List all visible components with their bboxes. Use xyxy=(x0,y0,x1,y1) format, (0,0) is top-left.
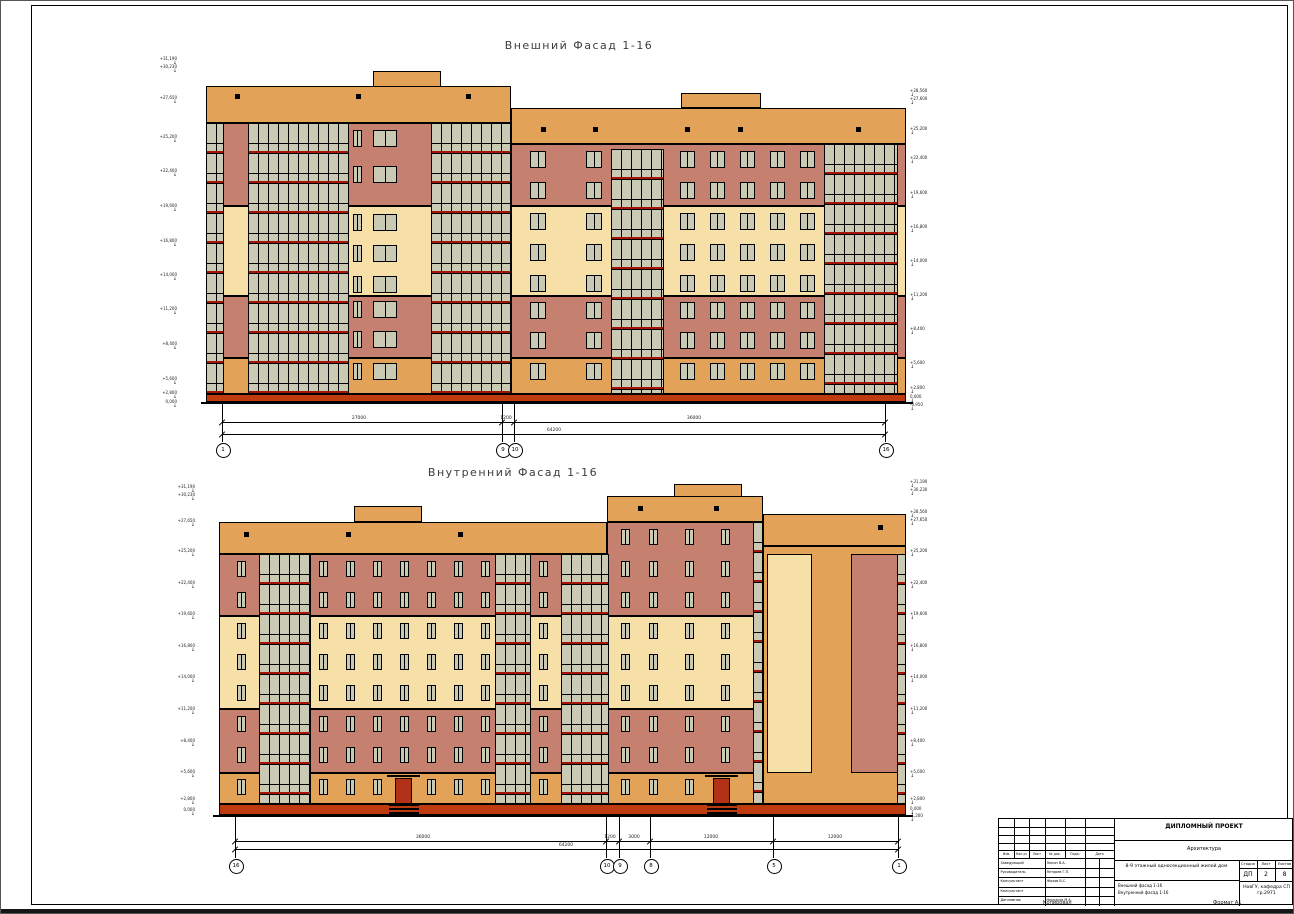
vent-opening xyxy=(235,94,240,99)
vent-opening xyxy=(856,127,861,132)
wall-panel xyxy=(219,522,607,554)
window xyxy=(400,654,409,670)
vent-opening xyxy=(356,94,361,99)
window xyxy=(721,529,730,545)
window xyxy=(454,592,463,608)
window xyxy=(710,213,725,230)
window xyxy=(481,592,490,608)
elevation-mark: +8,400↓ xyxy=(910,739,932,749)
extension-line xyxy=(619,817,620,858)
elevation-mark: +22,400↓ xyxy=(910,156,932,166)
window xyxy=(319,716,328,732)
window xyxy=(740,151,755,168)
list-value: 2 xyxy=(1257,871,1275,878)
window xyxy=(680,275,695,292)
window xyxy=(539,685,548,701)
window xyxy=(800,332,815,349)
title-block-cell: Жохов В.С. xyxy=(1047,879,1067,883)
title-block-cell: Подп. xyxy=(1065,852,1085,856)
window xyxy=(454,561,463,577)
elevation-mark: +27,600↓ xyxy=(910,97,932,107)
elevation-mark: +14,000↓ xyxy=(173,675,195,685)
balcony-glazing xyxy=(611,149,664,394)
window xyxy=(740,244,755,261)
vent-opening xyxy=(878,525,883,530)
window xyxy=(621,779,630,795)
window xyxy=(237,716,246,732)
window xyxy=(649,747,658,763)
wall-panel xyxy=(206,86,511,123)
elevation-mark: +19,600↓ xyxy=(155,204,177,214)
window xyxy=(621,685,630,701)
window xyxy=(530,275,546,292)
title-block-cell: Дата xyxy=(1085,852,1114,856)
elevation-mark: +25,200↓ xyxy=(173,549,195,559)
window xyxy=(346,747,355,763)
title-block-line xyxy=(1114,840,1294,841)
window xyxy=(373,331,397,348)
window xyxy=(586,302,602,319)
window xyxy=(685,623,694,639)
wall-panel xyxy=(763,514,906,546)
wall-panel xyxy=(354,506,422,522)
window xyxy=(621,561,630,577)
window xyxy=(710,302,725,319)
elevation-mark: +5,600↓ xyxy=(910,361,932,371)
window xyxy=(685,685,694,701)
window xyxy=(373,245,397,262)
window xyxy=(586,213,602,230)
window xyxy=(373,276,397,293)
window xyxy=(800,363,815,380)
window xyxy=(353,331,362,348)
window xyxy=(373,166,397,183)
window xyxy=(740,213,755,230)
elevation-mark: +16,800↓ xyxy=(155,239,177,249)
window xyxy=(530,363,546,380)
window xyxy=(710,151,725,168)
vent-opening xyxy=(738,127,743,132)
elevation-mark: +22,400↓ xyxy=(910,581,932,591)
window xyxy=(685,747,694,763)
window xyxy=(346,561,355,577)
elevation-mark: +2,800↓ xyxy=(173,797,195,807)
window xyxy=(353,166,362,183)
window xyxy=(539,747,548,763)
dimension-line xyxy=(222,434,885,435)
window xyxy=(319,747,328,763)
elevation-mark: -1,200↓ xyxy=(910,814,932,824)
window xyxy=(685,529,694,545)
window xyxy=(481,716,490,732)
window xyxy=(621,654,630,670)
window xyxy=(400,623,409,639)
balcony-glazing xyxy=(248,123,349,394)
window xyxy=(373,623,382,639)
elevation-mark: +27,650↓ xyxy=(910,518,932,528)
elevation-mark: +14,000↓ xyxy=(155,273,177,283)
title-block-cell: Заведующий xyxy=(1001,861,1024,865)
copied-label: Копировал xyxy=(1043,900,1072,906)
window xyxy=(373,561,382,577)
window xyxy=(685,716,694,732)
wall-panel xyxy=(206,394,906,402)
ground-line xyxy=(201,402,913,404)
window xyxy=(346,592,355,608)
window xyxy=(680,244,695,261)
window xyxy=(400,685,409,701)
window xyxy=(586,244,602,261)
window xyxy=(770,332,785,349)
window xyxy=(319,623,328,639)
format-label: Формат А1 xyxy=(1213,900,1241,906)
window xyxy=(621,623,630,639)
lists-header: Листов xyxy=(1275,862,1294,866)
title-block: ДИПЛОМНЫЙ ПРОЕКТ Архитектура 8-9 этажный… xyxy=(998,818,1293,905)
window xyxy=(740,302,755,319)
window xyxy=(539,654,548,670)
window xyxy=(353,130,362,147)
title-block-line xyxy=(999,868,1114,869)
window xyxy=(237,592,246,608)
window xyxy=(373,592,382,608)
entrance-canopy xyxy=(387,775,420,777)
elevation-mark: +5,600↓ xyxy=(910,770,932,780)
list-header: Лист xyxy=(1257,862,1275,866)
title-block-cell: Янтарев Г.П. xyxy=(1047,870,1070,874)
window xyxy=(740,332,755,349)
title-block-cell: Консультант xyxy=(1001,889,1024,893)
window xyxy=(530,213,546,230)
elevation-mark: +11,200↓ xyxy=(173,707,195,717)
axis-bubble: 1 xyxy=(216,443,231,458)
window xyxy=(800,213,815,230)
title-block-cell: № док. xyxy=(1045,852,1065,856)
window xyxy=(680,213,695,230)
window xyxy=(740,182,755,199)
window xyxy=(530,182,546,199)
elevation-mark: +22,400↓ xyxy=(173,581,195,591)
window xyxy=(685,779,694,795)
balcony-glazing xyxy=(259,554,311,804)
title-block-line xyxy=(1239,881,1294,882)
wall-panel xyxy=(851,554,899,773)
elevation-mark: +8,400↓ xyxy=(173,739,195,749)
window xyxy=(481,654,490,670)
window xyxy=(427,592,436,608)
elevation-mark: +30,230↓ xyxy=(173,493,195,503)
dimension-label: 12000 xyxy=(828,835,842,840)
window xyxy=(319,592,328,608)
window xyxy=(427,747,436,763)
entrance-steps xyxy=(389,804,419,814)
balcony-glazing xyxy=(824,144,898,394)
elevation-mark: +30,230↓ xyxy=(155,65,177,75)
window xyxy=(649,529,658,545)
elevation-mark: 0,000↓ xyxy=(155,400,177,410)
elevation-mark: +22,400↓ xyxy=(155,169,177,179)
elevation-mark: +11,200↓ xyxy=(910,293,932,303)
window xyxy=(710,182,725,199)
dimension-label: 3000 xyxy=(628,835,639,840)
window xyxy=(770,151,785,168)
axis-bubble: 16 xyxy=(229,859,244,874)
window xyxy=(427,779,436,795)
window xyxy=(454,747,463,763)
window xyxy=(346,654,355,670)
window xyxy=(400,561,409,577)
window xyxy=(346,623,355,639)
window xyxy=(621,747,630,763)
title-block-line xyxy=(1114,860,1294,861)
window xyxy=(770,182,785,199)
title-block-line xyxy=(999,835,1114,836)
elevation-mark: -0,950↓ xyxy=(910,403,932,413)
window xyxy=(649,592,658,608)
elevation-mark: +5,600↓ xyxy=(155,377,177,387)
window xyxy=(400,592,409,608)
dimension-label: 1200 xyxy=(604,835,615,840)
window xyxy=(373,301,397,318)
title-block-department: Архитектура xyxy=(1114,846,1294,852)
title-block-line xyxy=(999,827,1114,828)
title-block-line xyxy=(1114,819,1115,906)
title-block-line xyxy=(999,887,1114,888)
dimension-label: 64200 xyxy=(559,843,573,848)
axis-bubble: 5 xyxy=(767,859,782,874)
vent-opening xyxy=(458,532,463,537)
title-block-cell: Консультант xyxy=(1001,879,1024,883)
window xyxy=(740,275,755,292)
window xyxy=(481,779,490,795)
wall-panel xyxy=(373,71,441,87)
extension-line xyxy=(235,817,236,858)
window xyxy=(353,363,362,380)
window xyxy=(319,654,328,670)
vent-opening xyxy=(466,94,471,99)
window xyxy=(800,151,815,168)
vent-opening xyxy=(346,532,351,537)
title-block-sheet-name-2: Внутренний фасад 1-16 xyxy=(1118,890,1168,895)
elevation-mark: +11,200↓ xyxy=(910,707,932,717)
wall-panel xyxy=(607,496,763,522)
entrance-door xyxy=(395,778,412,804)
dimension-line xyxy=(222,422,885,423)
window xyxy=(454,716,463,732)
title-block-object: 8-9 этажный односекционный жилой дом xyxy=(1116,864,1237,870)
dimension-label: 1200 xyxy=(500,416,511,421)
window xyxy=(721,623,730,639)
window xyxy=(353,214,362,231)
window xyxy=(586,332,602,349)
axis-bubble: 10 xyxy=(508,443,523,458)
window xyxy=(800,302,815,319)
window xyxy=(400,716,409,732)
window xyxy=(770,275,785,292)
window xyxy=(680,151,695,168)
window xyxy=(586,182,602,199)
balcony-glazing xyxy=(753,522,763,804)
elevation-mark: +19,600↓ xyxy=(173,612,195,622)
title-block-sheet-name-1: Внешний фасад 1-16 xyxy=(1118,883,1162,888)
window xyxy=(721,747,730,763)
window xyxy=(530,302,546,319)
window xyxy=(237,654,246,670)
window xyxy=(721,654,730,670)
window xyxy=(770,213,785,230)
title-block-cell: Дипломник xyxy=(1001,898,1021,902)
stage-header: Стадия xyxy=(1239,862,1257,866)
window xyxy=(721,592,730,608)
window xyxy=(621,592,630,608)
window xyxy=(539,716,548,732)
window xyxy=(680,332,695,349)
window xyxy=(770,302,785,319)
elevation-mark: +16,800↓ xyxy=(173,644,195,654)
window xyxy=(721,716,730,732)
lists-value: 8 xyxy=(1275,871,1294,878)
window xyxy=(353,301,362,318)
window xyxy=(710,244,725,261)
elevation-mark: +8,400↓ xyxy=(155,342,177,352)
elevation-mark: +27,650↓ xyxy=(155,96,177,106)
window xyxy=(353,276,362,293)
axis-bubble: 9 xyxy=(613,859,628,874)
window xyxy=(481,561,490,577)
dimension-label: 36000 xyxy=(687,416,701,421)
elevation-mark: +25,200↓ xyxy=(910,127,932,137)
title-block-org: НовГУ, кафедра СП гр.2971 xyxy=(1239,885,1294,897)
elevation-mark: +5,600↓ xyxy=(173,770,195,780)
window xyxy=(481,685,490,701)
window xyxy=(800,182,815,199)
dimension-label: 27000 xyxy=(352,416,366,421)
window xyxy=(373,363,397,380)
title-block-cell: Изм. xyxy=(999,852,1014,856)
window xyxy=(346,716,355,732)
balcony-glazing xyxy=(561,554,609,804)
title-block-line xyxy=(1085,858,1086,906)
window xyxy=(649,779,658,795)
title-block-line xyxy=(1257,860,1258,881)
window xyxy=(586,275,602,292)
entrance-steps xyxy=(707,804,737,814)
vent-opening xyxy=(541,127,546,132)
dimension-label: 64200 xyxy=(547,428,561,433)
entrance-canopy xyxy=(705,775,738,777)
title-block-line xyxy=(999,858,1114,859)
window xyxy=(800,244,815,261)
extension-line xyxy=(650,817,651,858)
elevation-mark: +14,000↓ xyxy=(910,675,932,685)
window xyxy=(770,363,785,380)
title-block-cell: Руководитель xyxy=(1001,870,1026,874)
title-block-line xyxy=(999,843,1114,844)
vent-opening xyxy=(714,506,719,511)
title-block-project: ДИПЛОМНЫЙ ПРОЕКТ xyxy=(1114,823,1294,830)
window xyxy=(539,779,548,795)
window xyxy=(800,275,815,292)
elevation-mark: +30,230↓ xyxy=(910,488,932,498)
window xyxy=(710,275,725,292)
elevation-mark: +11,200↓ xyxy=(155,307,177,317)
window xyxy=(685,561,694,577)
window xyxy=(454,654,463,670)
elevation-mark: +19,600↓ xyxy=(910,612,932,622)
window xyxy=(237,685,246,701)
window xyxy=(721,685,730,701)
window xyxy=(427,654,436,670)
wall-panel xyxy=(767,554,812,773)
window xyxy=(427,716,436,732)
vent-opening xyxy=(593,127,598,132)
title-block-line xyxy=(1275,860,1276,881)
window xyxy=(770,244,785,261)
window xyxy=(539,592,548,608)
ground-line xyxy=(213,815,913,817)
window xyxy=(454,685,463,701)
elevation-mark: +16,800↓ xyxy=(910,225,932,235)
window xyxy=(621,716,630,732)
window xyxy=(685,654,694,670)
balcony-glazing xyxy=(431,123,511,394)
window xyxy=(710,332,725,349)
dimension-label: 12000 xyxy=(704,835,718,840)
axis-bubble: 8 xyxy=(644,859,659,874)
axis-bubble: 1 xyxy=(892,859,907,874)
extension-line xyxy=(898,817,899,858)
wall-panel xyxy=(511,108,906,144)
elevation-mark: +25,200↓ xyxy=(910,549,932,559)
elevation-mark: +27,650↓ xyxy=(173,519,195,529)
window xyxy=(481,623,490,639)
window xyxy=(530,244,546,261)
title-block-line xyxy=(1099,858,1100,906)
extension-line xyxy=(773,817,774,858)
facade-drawing-layer: +31,190↓+30,230↓+27,650↓+25,200↓+22,400↓… xyxy=(1,1,1294,914)
vent-opening xyxy=(685,127,690,132)
vent-opening xyxy=(638,506,643,511)
window xyxy=(373,654,382,670)
window xyxy=(710,363,725,380)
window xyxy=(649,716,658,732)
vent-opening xyxy=(244,532,249,537)
elevation-mark: +25,200↓ xyxy=(155,135,177,145)
window xyxy=(319,561,328,577)
drawing-sheet: Внешний Фасад 1-16 Внутренний Фасад 1-16… xyxy=(0,0,1294,914)
window xyxy=(685,592,694,608)
window xyxy=(353,245,362,262)
window xyxy=(373,716,382,732)
title-block-cell: Ланин В.А. xyxy=(1047,861,1066,865)
window xyxy=(586,151,602,168)
balcony-glazing xyxy=(206,123,224,394)
window xyxy=(237,779,246,795)
window xyxy=(530,332,546,349)
window xyxy=(481,747,490,763)
title-block-cell: Кол.уч xyxy=(1014,852,1029,856)
window xyxy=(680,302,695,319)
elevation-mark: +14,000↓ xyxy=(910,259,932,269)
window xyxy=(373,779,382,795)
window xyxy=(427,685,436,701)
window xyxy=(454,623,463,639)
window xyxy=(649,561,658,577)
dimension-line xyxy=(235,841,898,842)
title-block-line xyxy=(1114,880,1239,881)
dimension-label: 36000 xyxy=(416,835,430,840)
window xyxy=(319,685,328,701)
